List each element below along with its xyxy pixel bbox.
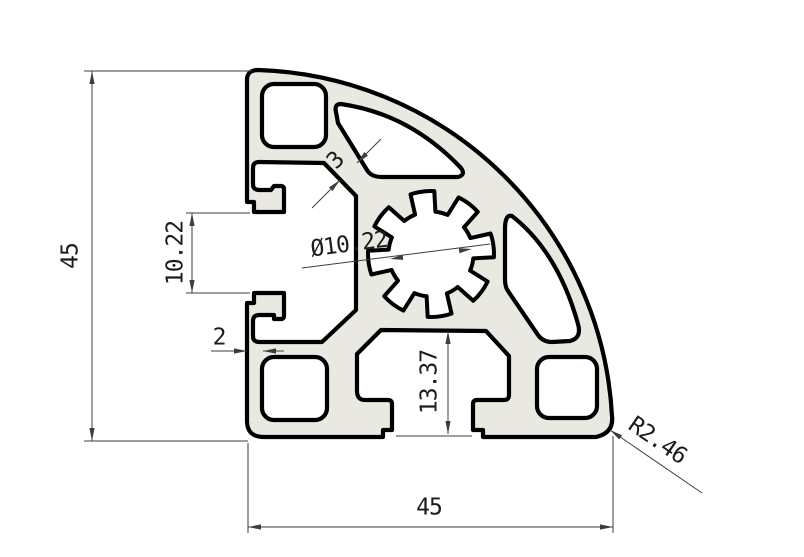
dimension-width-45: 45 [248,436,613,533]
dimension-label-slot-opening: 10.22 [163,221,189,285]
dimension-corner-radius: R2.46 [610,412,702,493]
cavity-bottom-right-square [537,357,597,418]
drawing-canvas: 45 10.22 2 3 Ø10.22 13.37 [0,0,804,557]
arrowhead [248,524,261,529]
arrowhead [445,331,450,344]
arrowhead [445,421,450,434]
dimension-label-wall: 2 [213,325,226,351]
arrowhead [189,280,194,293]
dimension-height-45: 45 [58,71,253,441]
dimension-slot-depth-13-37: 13.37 [396,331,472,436]
arrowhead [89,71,94,84]
dimension-label-slot-depth: 13.37 [417,350,443,414]
arrowhead [189,213,194,226]
dimension-slot-opening-10-22: 10.22 [163,213,251,293]
cavity-top-left-square [262,84,326,147]
arrowhead [610,430,622,439]
arrowhead [89,428,94,441]
dimension-label-corner-radius: R2.46 [623,412,691,470]
dimension-label-width: 45 [416,495,442,521]
dimension-label-height: 45 [58,243,84,269]
arrowhead [600,524,613,529]
center-bore [368,191,494,317]
profile-drawing: 45 10.22 2 3 Ø10.22 13.37 [0,0,804,557]
cavity-bottom-left-square [262,357,327,420]
